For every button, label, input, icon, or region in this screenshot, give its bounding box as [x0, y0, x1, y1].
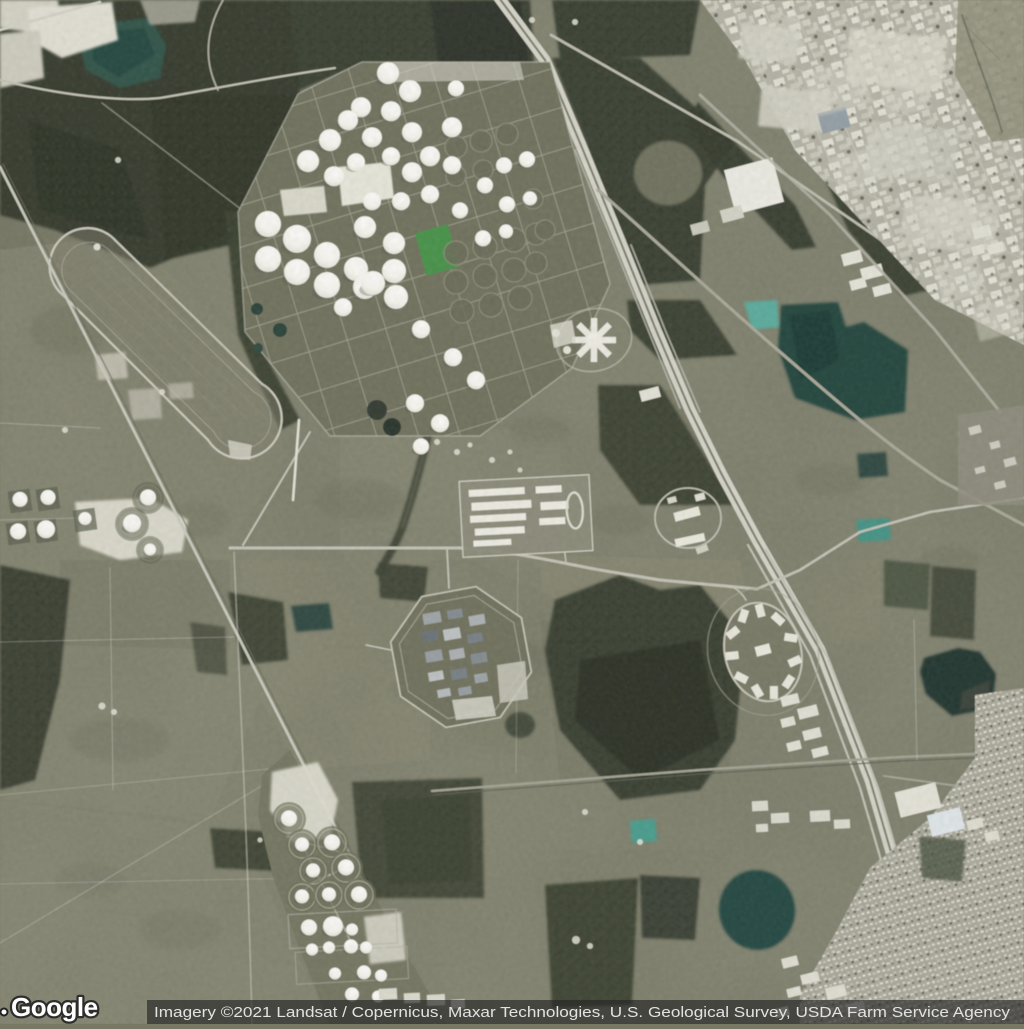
svg-text:Google: Google	[11, 992, 98, 1022]
svg-text:Imagery ©2021 Landsat / Copern: Imagery ©2021 Landsat / Copernicus, Maxa…	[154, 1005, 1011, 1021]
